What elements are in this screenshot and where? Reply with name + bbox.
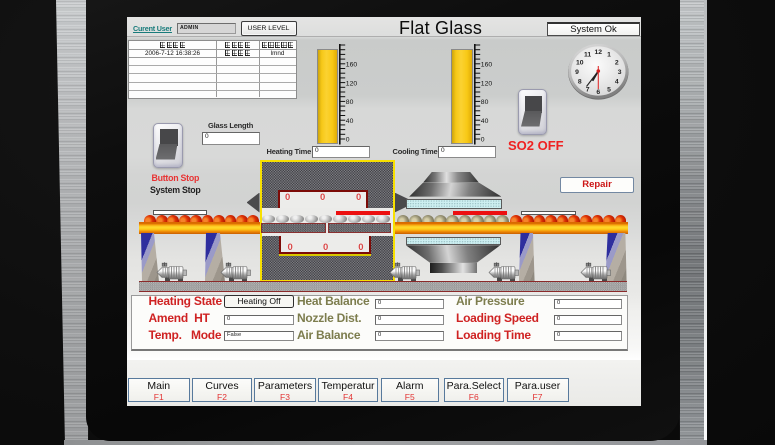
svg-text:0: 0 xyxy=(346,137,350,144)
svg-text:40: 40 xyxy=(480,118,488,125)
svg-text:5: 5 xyxy=(607,86,611,93)
svg-text:160: 160 xyxy=(346,62,358,69)
svg-text:11: 11 xyxy=(584,52,591,59)
svg-text:9: 9 xyxy=(575,69,579,76)
svg-text:40: 40 xyxy=(346,118,354,125)
svg-text:8: 8 xyxy=(578,79,582,86)
svg-text:4: 4 xyxy=(615,79,619,86)
svg-text:1: 1 xyxy=(607,52,611,59)
svg-text:6: 6 xyxy=(596,89,600,96)
svg-text:80: 80 xyxy=(346,99,354,106)
svg-text:3: 3 xyxy=(618,69,622,76)
svg-text:80: 80 xyxy=(480,99,488,106)
svg-text:120: 120 xyxy=(346,80,358,87)
svg-text:120: 120 xyxy=(480,80,492,87)
svg-text:10: 10 xyxy=(576,59,584,66)
svg-text:2: 2 xyxy=(615,59,619,66)
svg-text:0: 0 xyxy=(480,137,484,144)
svg-text:7: 7 xyxy=(586,86,590,93)
svg-text:12: 12 xyxy=(595,49,603,56)
svg-text:160: 160 xyxy=(480,62,492,69)
